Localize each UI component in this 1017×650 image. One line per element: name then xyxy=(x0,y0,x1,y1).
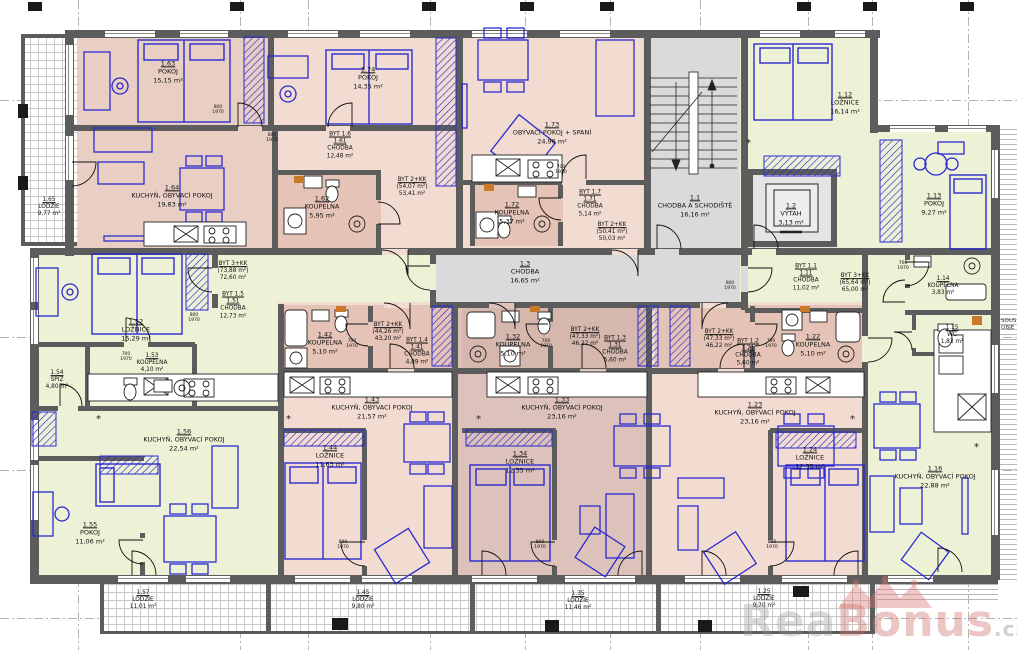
room-label: 1.57LODŽIE11,01 m² xyxy=(130,590,156,612)
room-label: 1.56KUCHYŇ, OBÝVACÍ POKOJ22,54 m² xyxy=(143,427,224,452)
room-label: BYT 2+KK(47,33 m²)46,22 m² xyxy=(570,327,601,349)
room-label: BYT 1.31.31CHODBA5,60 m² xyxy=(602,336,627,365)
room-label: 1.22KOUPELNA5,10 m² xyxy=(796,332,831,357)
door-size-tag: 8001970 xyxy=(188,313,199,323)
room-label: 1.44LOŽNICE11,63 m² xyxy=(315,443,345,468)
room-label: 1.33KUCHYŇ, OBÝVACÍ POKOJ23,16 m² xyxy=(521,395,602,420)
door-size-tag: 8001970 xyxy=(766,540,777,550)
door-size-tag: 9001970 xyxy=(724,281,735,291)
room-label: 1.13POKOJ9,27 m² xyxy=(921,191,946,216)
svg-text:*: * xyxy=(476,414,481,425)
room-label: 1.63POKOJ15,15 m² xyxy=(153,59,183,84)
room-label: BYT 2+KK(47,33 m²)46,22 m² xyxy=(704,329,735,351)
room-label: BYT 1.21.21CHODBA5,60 m² xyxy=(735,339,760,368)
room-label: BYT 1.11.11CHODBA11,02 m² xyxy=(793,264,819,293)
room-label: 1.62KOUPELNA5,95 m² xyxy=(305,194,340,219)
door-size-tag: 7001970 xyxy=(897,261,908,271)
room-label: BYT 1.41.41CHODBA4,89 m² xyxy=(404,338,429,367)
room-label: 1.42KOUPELNA5,10 m² xyxy=(308,330,343,355)
room-label: 1.54SPÍŽ4,80 m² xyxy=(46,370,69,392)
door-size-tag: 7001970 xyxy=(540,339,551,349)
room-label: 1.53KOUPELNA4,10 m² xyxy=(137,353,168,375)
room-label: BYT 2+KK(50,41 m²)50,03 m² xyxy=(597,222,628,244)
room-label: 1.64KUCHYŇ, OBÝVACÍ POKOJ19,83 m² xyxy=(131,183,212,208)
room-label: 1.74POKOJ14,35 m² xyxy=(353,65,383,90)
room-label: 1.23KUCHYŇ, OBÝVACÍ POKOJ23,16 m² xyxy=(714,400,795,425)
room-label: 1.12LOŽNICE16,14 m² xyxy=(830,90,860,115)
svg-text:*: * xyxy=(746,138,751,149)
room-label: 1.2VÝTAH3,13 m² xyxy=(778,201,803,226)
room-label: 1.55POKOJ11,06 m² xyxy=(75,520,105,545)
room-label: 1.35LODŽIE11,46 m² xyxy=(565,591,591,613)
room-label: 1.25LODŽIE9,70 m² xyxy=(753,589,776,611)
stairs xyxy=(650,72,737,174)
room-label: 1.16KUCHYŇ, OBÝVACÍ POKOJ22,88 m² xyxy=(894,464,975,489)
tables-seating xyxy=(33,28,968,584)
room-label: 1.15WC1,83 m² xyxy=(941,325,964,347)
svg-text:*: * xyxy=(286,414,291,425)
room-label: BYT 3+KK(73,88 m²)72,60 m² xyxy=(218,261,249,283)
door-size-tag: 7001970 xyxy=(120,352,131,362)
door-size-tag: 8001970 xyxy=(266,133,277,143)
door-size-tag: 8001970 xyxy=(337,540,348,550)
room-label: BYT 2+KK(44,26 m²)43,20 m² xyxy=(373,322,404,344)
room-label: BYT 1.51.51CHODBA12,73 m² xyxy=(220,292,246,321)
door-size-tag: 8001970 xyxy=(212,105,223,115)
room-label: 1.34LOŽNICE12,35 m² xyxy=(505,449,535,474)
room-label: 1.43KUCHYŇ, OBÝVACÍ POKOJ21,57 m² xyxy=(331,395,412,420)
room-label: 1.14KOUPELNA3,83 m² xyxy=(928,276,959,298)
svg-text:*: * xyxy=(974,442,979,453)
door-size-tag: 8001970 xyxy=(534,540,545,550)
room-label: 1.32KOUPELNA5,10 m² xyxy=(496,332,531,357)
door-size-tag: 7001970 xyxy=(555,165,566,175)
floor-plan: *** *** xyxy=(0,0,1017,650)
room-label: 1.1CHODBA A SCHODIŠTĚ16,16 m² xyxy=(658,193,733,218)
room-label: 1.45LODŽIE9,80 m² xyxy=(352,590,375,612)
room-label: BYT 3+KK(65,64 m²)65,00 m² xyxy=(840,273,871,295)
door-size-tag: 7001970 xyxy=(765,339,776,349)
room-label: 1.52LOŽNICE15,29 m² xyxy=(121,317,151,342)
door-size-tag: 7001970 xyxy=(346,339,357,349)
room-label: 1.73OBÝVACÍ POKOJ + SPANÍ24,96 m² xyxy=(513,120,592,145)
room-label: BYT 1.61.61CHODBA12,48 m² xyxy=(327,132,353,161)
room-label: BYT 2+KK(54,07 m²)53,41 m² xyxy=(397,177,428,199)
svg-text:*: * xyxy=(850,414,855,425)
room-label: 1.72KOUPELNA5,37 m² xyxy=(495,200,530,225)
room-label: 1.24LOŽNICE12,35 m² xyxy=(795,445,825,470)
room-label: BYT 1.71.71CHODBA5,14 m² xyxy=(577,190,602,219)
room-label: 1.65LODŽIE9,77 m² xyxy=(38,197,61,219)
furniture-layer: *** *** xyxy=(0,0,1017,650)
room-label: 1.3CHODBA16,65 m² xyxy=(510,259,540,284)
svg-text:*: * xyxy=(96,414,101,425)
side-note: SOUS OBJE xyxy=(1001,318,1016,332)
